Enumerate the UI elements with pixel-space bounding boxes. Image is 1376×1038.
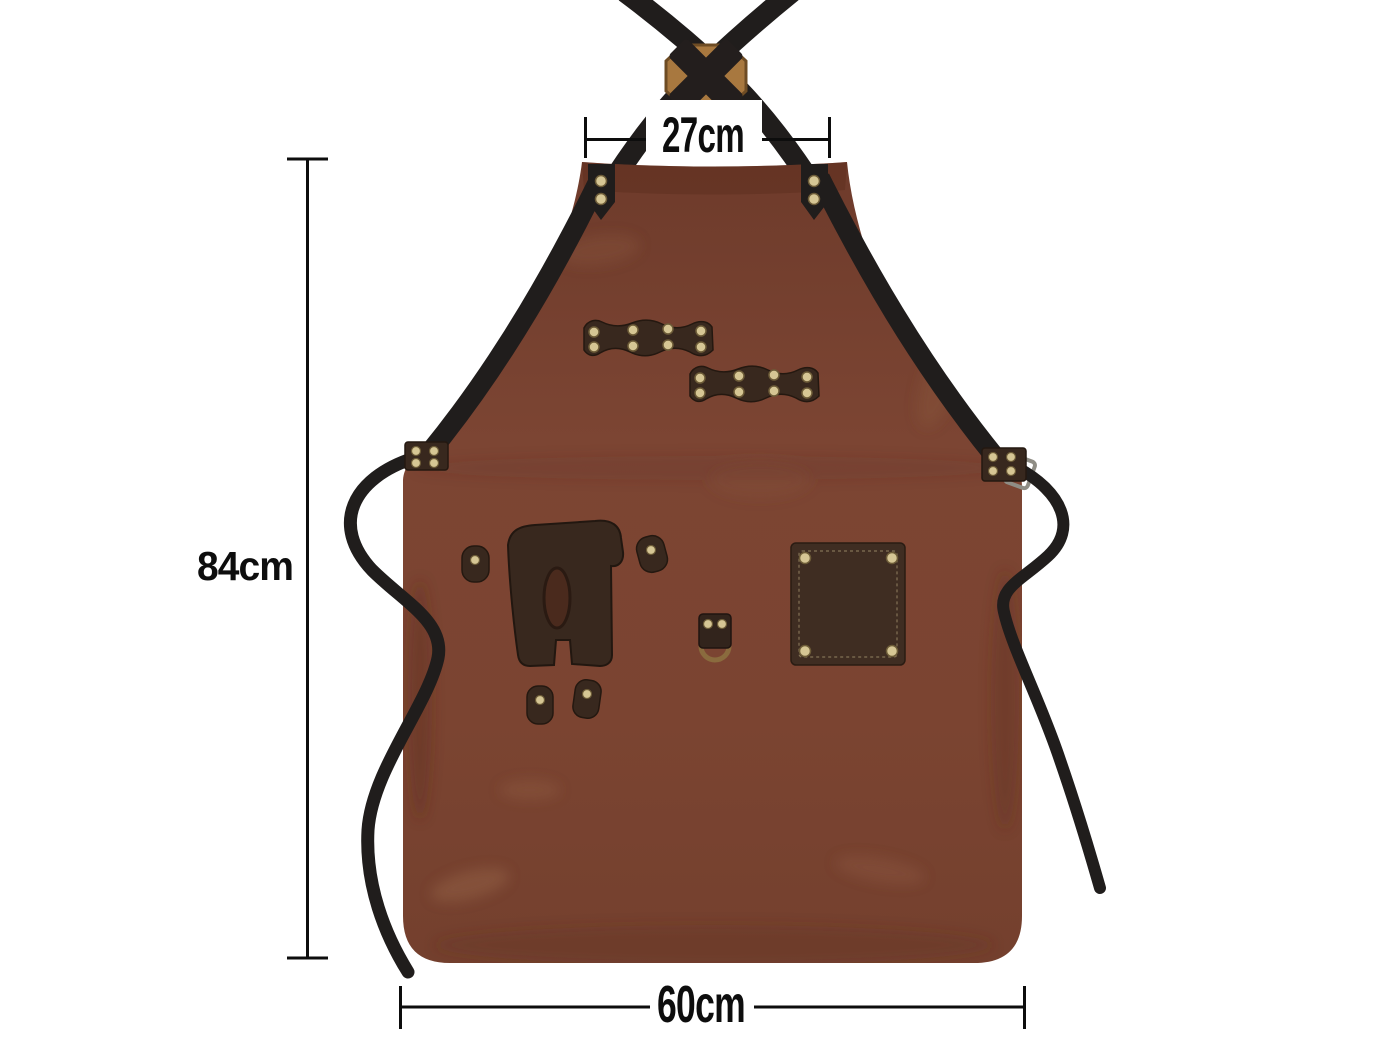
rivet (1007, 467, 1016, 476)
rivet (536, 696, 545, 705)
d-ring-tab (699, 614, 731, 648)
rivet (1007, 453, 1016, 462)
rivet (800, 553, 811, 564)
rivet (887, 553, 898, 564)
rivet (809, 194, 820, 205)
rivet (471, 556, 480, 565)
dimension-label-neck-width: 27cm (662, 107, 744, 163)
rivet (430, 459, 439, 468)
rivet (596, 176, 607, 187)
rivet (412, 459, 421, 468)
rivet (989, 453, 998, 462)
dimension-label-height: 84cm (197, 543, 293, 589)
waist-tab-left (405, 442, 448, 470)
apron-size-diagram: 27cm 84cm 60cm (0, 0, 1376, 1038)
rivet (596, 194, 607, 205)
rivet (647, 546, 656, 555)
rivet (887, 646, 898, 657)
apron-body (403, 162, 1022, 963)
rivet (989, 467, 998, 476)
tool-loop-strip-bottom (690, 366, 819, 402)
apron-illustration: 27cm 84cm 60cm (0, 0, 1376, 1038)
rivet (800, 646, 811, 657)
rivet (583, 690, 592, 699)
dimension-label-width: 60cm (657, 976, 745, 1034)
waist-tab-right (982, 448, 1026, 481)
rivet (704, 620, 713, 629)
rivet (718, 620, 727, 629)
holster-slot (544, 568, 570, 628)
apron-body-group (403, 162, 1022, 965)
rivet (430, 447, 439, 456)
dimension-width: 60cm (401, 976, 1025, 1034)
dimension-height: 84cm (197, 158, 328, 959)
rivet (412, 447, 421, 456)
rivet (809, 176, 820, 187)
patch-pocket (791, 543, 905, 665)
tool-loop-strip-top (584, 320, 713, 356)
